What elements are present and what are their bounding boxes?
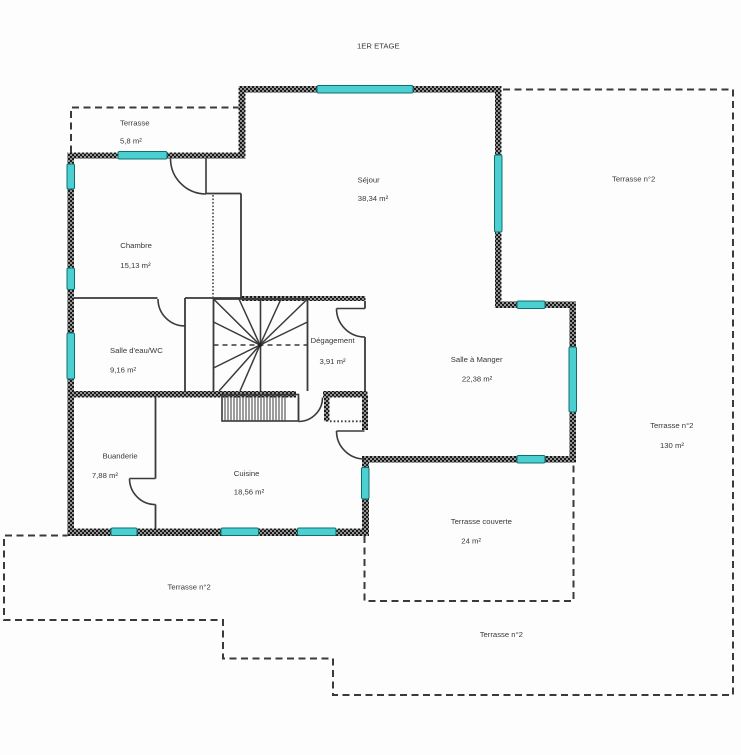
svg-text:Terrasse couverte: Terrasse couverte [451, 517, 512, 526]
svg-text:22,38 m²: 22,38 m² [462, 374, 493, 383]
svg-text:Séjour: Séjour [358, 176, 381, 185]
svg-text:1ER ETAGE: 1ER ETAGE [357, 42, 400, 51]
svg-text:Dégagement: Dégagement [311, 336, 356, 345]
svg-text:7,88 m²: 7,88 m² [92, 471, 119, 480]
svg-text:3,91 m²: 3,91 m² [320, 357, 347, 366]
svg-text:24 m²: 24 m² [461, 536, 481, 545]
svg-text:Salle d'eau/WC: Salle d'eau/WC [110, 346, 163, 355]
svg-text:9,16 m²: 9,16 m² [110, 366, 137, 375]
svg-text:Cuisine: Cuisine [234, 469, 260, 478]
svg-text:Salle à Manger: Salle à Manger [451, 355, 503, 364]
svg-text:38,34 m²: 38,34 m² [358, 194, 389, 203]
svg-text:Terrasse n°2: Terrasse n°2 [650, 421, 693, 430]
svg-text:130 m²: 130 m² [660, 441, 684, 450]
svg-text:5,8 m²: 5,8 m² [120, 136, 142, 145]
svg-text:Terrasse n°2: Terrasse n°2 [168, 583, 211, 592]
svg-text:Terrasse: Terrasse [120, 118, 149, 127]
svg-text:Terrasse n°2: Terrasse n°2 [480, 630, 523, 639]
svg-text:Chambre: Chambre [120, 241, 152, 250]
svg-text:18,56 m²: 18,56 m² [234, 487, 265, 496]
svg-text:15,13 m²: 15,13 m² [120, 261, 151, 270]
svg-text:Terrasse n°2: Terrasse n°2 [612, 175, 655, 184]
svg-text:Buanderie: Buanderie [103, 451, 138, 460]
